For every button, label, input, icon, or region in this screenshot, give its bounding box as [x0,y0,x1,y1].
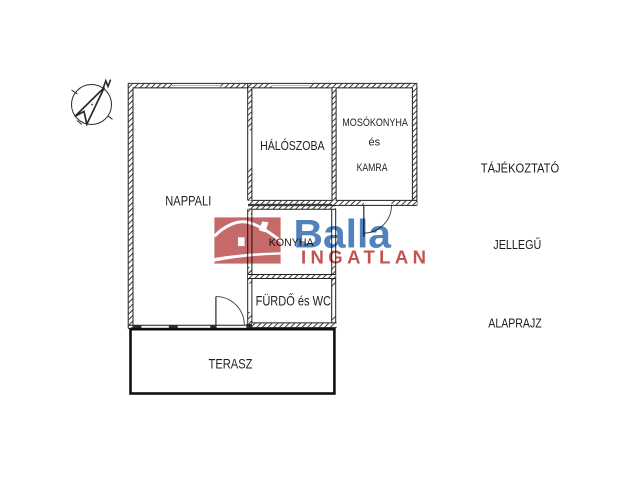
svg-text:KAMRA: KAMRA [357,162,388,174]
svg-text:HÁLÓSZOBA: HÁLÓSZOBA [260,138,325,153]
svg-text:INGATLAN: INGATLAN [301,247,426,268]
svg-text:NAPPALI: NAPPALI [165,193,211,208]
svg-text:TÁJÉKOZTATÓ: TÁJÉKOZTATÓ [481,160,559,175]
svg-text:TERASZ: TERASZ [209,356,253,371]
svg-text:ALAPRAJZ: ALAPRAJZ [488,315,541,330]
svg-text:FÜRDŐ és WC: FÜRDŐ és WC [256,293,331,308]
svg-text:MOSÓKONYHA: MOSÓKONYHA [342,116,408,129]
svg-text:JELLEGŰ: JELLEGŰ [493,237,541,252]
svg-text:és: és [369,137,381,149]
